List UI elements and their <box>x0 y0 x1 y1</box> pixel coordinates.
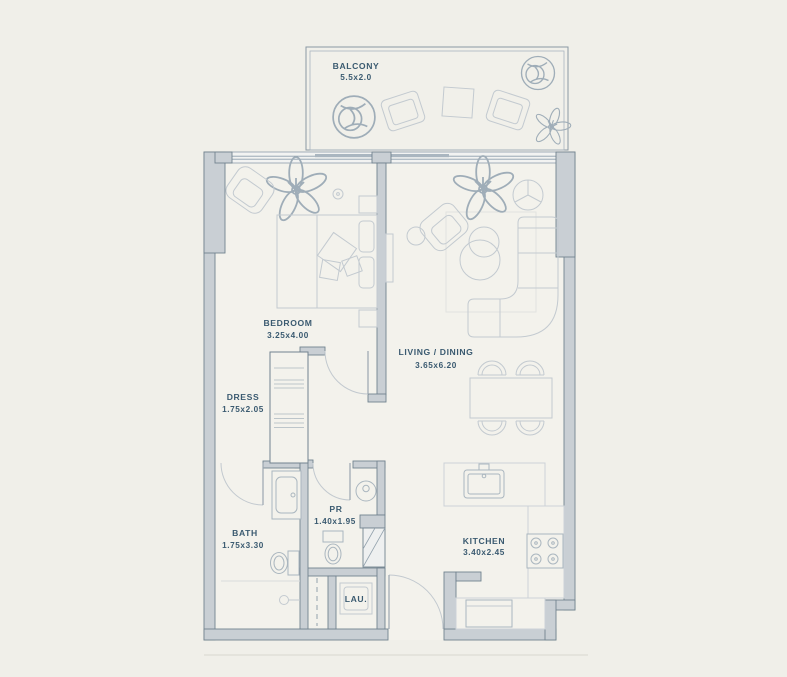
stove <box>527 534 563 568</box>
balcony-label: BALCONY <box>333 61 380 71</box>
living-dining-dims: 3.65x6.20 <box>415 361 457 370</box>
wall-entry-vertical <box>444 572 456 629</box>
kitchen-faucet <box>479 464 489 470</box>
bath-toilet-bowl-inner <box>274 556 284 570</box>
window-mullion <box>372 152 391 163</box>
dress-closet <box>270 352 308 463</box>
service-shaft <box>363 528 385 567</box>
wardrobe <box>270 352 308 463</box>
pr-toilet-tank <box>323 531 343 542</box>
bedroom-dims: 3.25x4.00 <box>267 331 309 340</box>
dining-table <box>470 378 552 418</box>
dress-dims: 1.75x2.05 <box>222 405 264 414</box>
bath-label: BATH <box>232 528 258 538</box>
balcony-dims: 5.5x2.0 <box>340 73 372 82</box>
living-dining-label: LIVING / DINING <box>399 347 474 357</box>
wall-entry-stub <box>456 572 481 581</box>
wall-step-vertical <box>545 600 556 640</box>
floor-plan-canvas: BALCONY 5.5x2.0 BEDROOM 3.25x4.00 LIVING… <box>0 0 787 677</box>
wall-pr-bottom <box>300 568 385 576</box>
kitchen-faucet-dot <box>482 474 486 478</box>
bath-toilet-tank <box>288 551 299 575</box>
pr-sink-drain <box>363 485 369 491</box>
sliding-door-panel-right <box>391 154 449 157</box>
wall-laundry-left <box>328 576 336 629</box>
column-top-left <box>204 152 225 253</box>
bath-dims: 1.75x3.30 <box>222 541 264 550</box>
wall-bedroom-living <box>377 163 386 395</box>
kitchen-appliance <box>466 600 512 627</box>
pr-toilet-bowl-inner <box>328 547 338 561</box>
wall-laundry-right <box>377 568 385 629</box>
bath-faucet <box>291 493 295 497</box>
wall-foot <box>368 394 386 402</box>
kitchen-dims: 3.40x2.45 <box>463 548 505 557</box>
floor-plan-drawing: BALCONY 5.5x2.0 BEDROOM 3.25x4.00 LIVING… <box>0 0 787 677</box>
wall-bottom-left <box>204 629 388 640</box>
wall-pr-right <box>377 461 385 515</box>
wall-jog-block <box>360 515 385 528</box>
pr-dims: 1.40x1.95 <box>314 517 356 526</box>
dress-label: DRESS <box>227 392 260 402</box>
entrance-threshold <box>388 629 444 640</box>
bedroom-label: BEDROOM <box>263 318 312 328</box>
wall-bottom-right <box>444 629 556 640</box>
window-end-chunk <box>215 152 232 163</box>
column-top-right <box>556 152 575 257</box>
pr-label: PR <box>329 504 342 514</box>
laundry-label: LAU. <box>345 594 367 604</box>
kitchen-label: KITCHEN <box>463 536 505 546</box>
corner-notch <box>556 610 576 642</box>
sliding-door-panel-left <box>315 154 373 157</box>
